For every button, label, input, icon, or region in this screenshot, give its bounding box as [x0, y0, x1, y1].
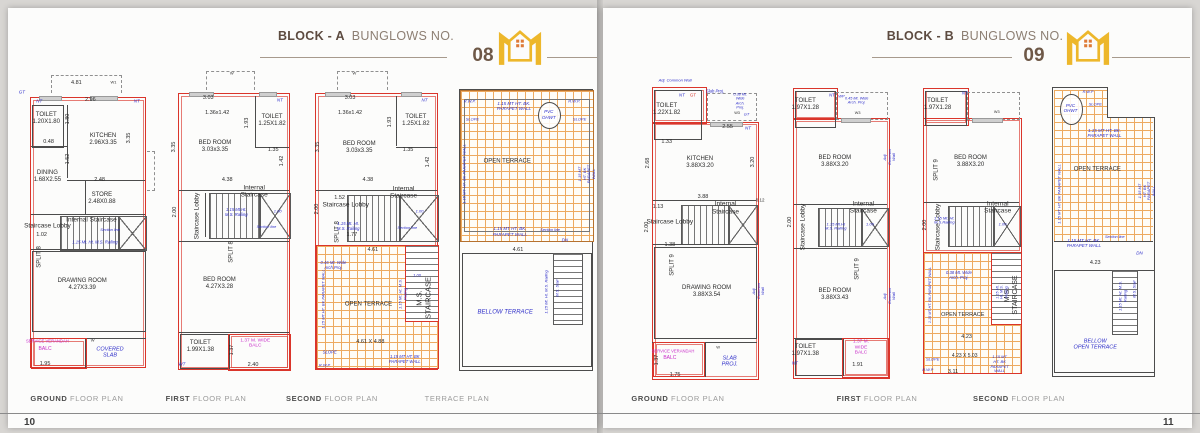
projection-dashed: [836, 92, 888, 120]
caption-terrace: TERRACE PLAN: [425, 394, 490, 403]
wall: [316, 190, 437, 191]
page-header: BLOCK - ABUNGLOWS NO.: [258, 29, 474, 43]
ms-staircase-treads: [405, 245, 439, 322]
header-rule: [872, 57, 1012, 58]
wall: [179, 241, 289, 242]
brand-logo-icon: [497, 24, 543, 69]
wall: [205, 193, 206, 237]
page-header: BLOCK - BBUNGLOWS NO.: [867, 29, 1083, 43]
header-rule: [1112, 57, 1190, 58]
plan-label: 3.35: [170, 142, 176, 153]
window-mark: [841, 118, 872, 123]
bungalow-number: 09: [1017, 45, 1051, 67]
drawing-room-wall: [654, 247, 757, 339]
water-tank: [1060, 94, 1083, 125]
plan-label: Adj. Common Wall: [659, 79, 692, 84]
caption-rest: FLOOR PLAN: [1009, 394, 1065, 403]
wall: [67, 105, 68, 178]
staircase-treads: [818, 208, 864, 248]
header-rule: [260, 57, 447, 58]
plan-label: 2.00: [644, 221, 650, 232]
page-number: 11: [1163, 417, 1174, 428]
plan-label: 2.00: [171, 207, 177, 218]
caption-first-floor: FIRST FLOOR PLAN: [837, 394, 918, 403]
window-dashed: [147, 151, 155, 191]
staircase-section: [861, 208, 889, 248]
plan-label: 4.23: [1090, 260, 1101, 266]
staircase-section: [259, 193, 291, 239]
brand-logo-icon: [1065, 24, 1111, 69]
slab-projection-dashed: [707, 93, 757, 121]
staircase-section: [399, 195, 439, 241]
plan-label: 2.68: [645, 157, 651, 168]
staircase-section: [728, 205, 758, 245]
staircase-treads: [681, 205, 729, 245]
toilet-wall: [32, 105, 64, 148]
toilet-wall: [654, 90, 702, 140]
staircase-section: [993, 206, 1021, 246]
ms-stair-treads: [1112, 270, 1139, 336]
wall: [85, 180, 86, 214]
window-mark: [710, 122, 744, 127]
window-mark: [90, 96, 118, 101]
projection-dashed: [967, 92, 1020, 120]
wall: [924, 202, 1019, 203]
wall: [396, 147, 437, 148]
wall: [179, 190, 289, 191]
caption-rest: TERRACE PLAN: [425, 394, 490, 403]
page-gutter: [597, 0, 603, 433]
wall: [67, 180, 145, 181]
page-left: BLOCK - ABUNGLOWS NO. 08: [8, 8, 597, 428]
wall: [31, 214, 145, 215]
page-number: 10: [24, 417, 35, 428]
staircase-section: [118, 216, 147, 251]
page-right: BLOCK - BBUNGLOWS NO. 09 Adj. Common: [603, 8, 1192, 428]
ms-stair-treads: [553, 253, 583, 326]
notch-patch: [1107, 87, 1155, 117]
outer-wall: [1107, 117, 1155, 118]
outer-wall: [1052, 87, 1053, 377]
projection-dashed: [206, 71, 255, 90]
balcony-wall: [31, 338, 86, 368]
staircase-treads: [209, 193, 260, 239]
outer-wall: [1052, 376, 1155, 377]
wall: [255, 96, 256, 147]
toilet-wall: [925, 91, 967, 126]
toilet-wall: [795, 339, 845, 376]
ms-staircase-treads: [991, 252, 1022, 325]
wall: [794, 204, 887, 205]
toilet-wall: [180, 334, 230, 369]
caption-ground-floor: GROUND FLOOR PLAN: [30, 394, 123, 403]
wall: [653, 200, 756, 201]
block-title: BLOCK - A: [278, 29, 345, 43]
railing-line: [794, 248, 887, 249]
caption-bold: FIRST: [166, 394, 191, 403]
caption-bold: SECOND: [973, 394, 1009, 403]
plan-block-a-second-floor: W3.03NT1.36x1.42TOILET 1.25X1.821.933.35…: [315, 93, 438, 370]
plan-block-b-first-floor: TOILET 1.97X1.28NTWP0.45 Mt. Wide Arch. …: [793, 88, 888, 377]
balcony-wall: [842, 338, 889, 378]
caption-rest: FLOOR PLAN: [668, 394, 724, 403]
window-mark: [39, 96, 62, 101]
railing-line: [653, 244, 756, 245]
plan-block-b-second-floor: TOILET 1.97X1.28NTW3SPLIT 9BED ROOM 3.88…: [923, 88, 1020, 373]
plan-block-b-ground-floor: Adj. Common WallNTGTSlab Proj.0.38 Mt. W…: [652, 87, 757, 378]
parapet-line: [464, 99, 590, 232]
caption-bold: SECOND: [286, 394, 322, 403]
caption-bold: GROUND: [30, 394, 67, 403]
caption-rest: FLOOR PLAN: [67, 394, 123, 403]
railing-line: [31, 249, 145, 250]
caption-ground-floor: GROUND FLOOR PLAN: [631, 394, 724, 403]
window-mark: [189, 92, 213, 97]
plan-block-a-first-floor: W3.03NT1.36x1.42TOILET 1.25X1.821.933.35…: [178, 93, 290, 370]
footer-rule: [0, 413, 1200, 414]
bungalow-number: 08: [466, 45, 500, 67]
window-mark: [259, 92, 278, 97]
wall: [31, 146, 67, 147]
bellow-terrace-wall: [1054, 270, 1155, 374]
projection-dashed: [337, 71, 388, 90]
caption-rest: FLOOR PLAN: [861, 394, 917, 403]
plan-block-a-ground-floor: 4.81GTW1NT2.96NTTOILET 1.20X1.801.80KITC…: [30, 97, 146, 368]
staircase-treads: [60, 216, 120, 251]
caption-bold: GROUND: [631, 394, 668, 403]
header-rule: [547, 57, 597, 58]
window-mark: [401, 92, 421, 97]
outer-wall: [1107, 87, 1108, 117]
plan-block-a-terrace: R.W.P.R.W.P.1.15 MT HT. BK. PARAPET WALL…: [459, 89, 593, 371]
caption-rest: FLOOR PLAN: [322, 394, 378, 403]
brochure-spread: BLOCK - ABUNGLOWS NO. 08: [0, 0, 1200, 433]
toilet-wall: [795, 91, 836, 128]
staircase-treads: [347, 195, 401, 241]
caption-first-floor: FIRST FLOOR PLAN: [166, 394, 247, 403]
plan-block-b-terrace: PVC OHWTR.W.PSLOPE1.15 MT HT. BK. PARAPE…: [1052, 87, 1155, 377]
window-mark: [972, 118, 1003, 123]
balcony-wall: [653, 342, 705, 377]
plan-label: GT: [19, 89, 25, 94]
balcony-wall: [228, 334, 290, 371]
staircase-treads: [948, 206, 995, 246]
window-mark: [325, 92, 352, 97]
projection-dashed: [51, 75, 123, 92]
block-subtitle: BUNGLOWS NO.: [961, 29, 1063, 43]
caption-second-floor: SECOND FLOOR PLAN: [973, 394, 1065, 403]
wall: [179, 332, 289, 333]
wall: [255, 147, 289, 148]
block-subtitle: BUNGLOWS NO.: [352, 29, 454, 43]
drawing-room-wall: [32, 251, 145, 332]
wall: [396, 96, 397, 146]
caption-bold: FIRST: [837, 394, 862, 403]
plan-label: DN: [1136, 250, 1143, 255]
caption-second-floor: SECOND FLOOR PLAN: [286, 394, 378, 403]
block-title: BLOCK - B: [887, 29, 954, 43]
caption-rest: FLOOR PLAN: [190, 394, 246, 403]
wall: [1054, 241, 1153, 242]
outer-wall: [1052, 87, 1107, 88]
